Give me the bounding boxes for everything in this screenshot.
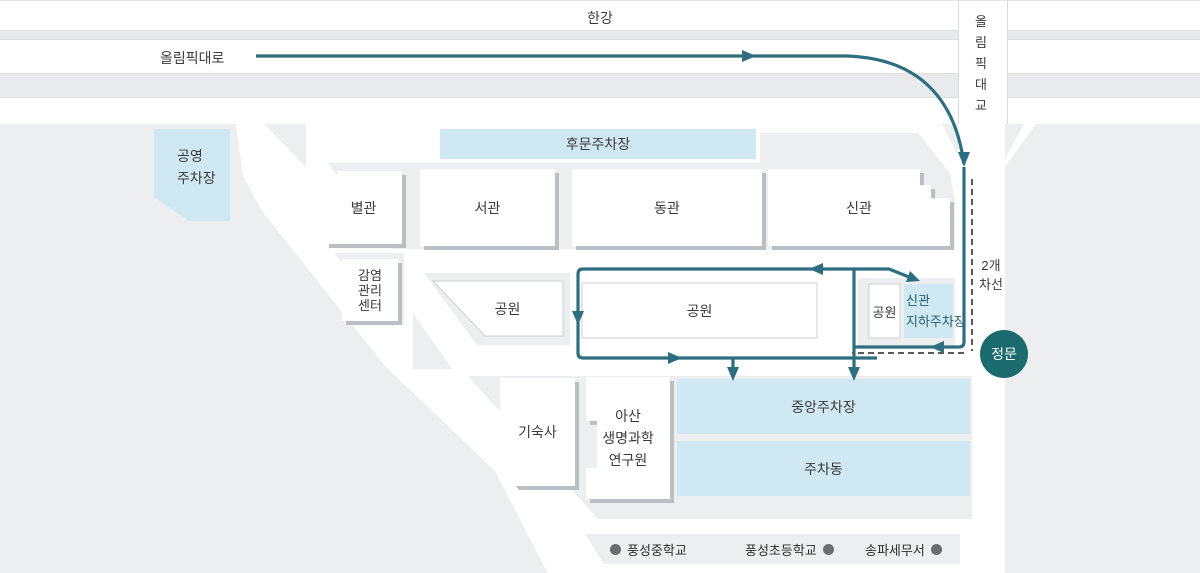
- campus-wedge-top: [264, 124, 306, 167]
- campus-directions-map: 올 림 픽 대 교 한강 올림픽대로 공영 주차장: [0, 0, 1200, 573]
- label-line: 연구원: [602, 449, 654, 471]
- bridge-char: 대: [966, 74, 996, 95]
- research-institute-label: 아산 생명과학 연구원: [586, 377, 670, 499]
- route-arrow-west-gate: [930, 341, 944, 353]
- legend-item-tax-office: 송파세무서: [865, 534, 942, 564]
- legend-item-middle-school: 풍성중학교: [610, 534, 687, 564]
- central-parking-area: 중앙주차장: [677, 379, 970, 434]
- west-wing-building: 서관: [420, 169, 555, 246]
- legend-label: 풍성초등학교: [745, 540, 817, 559]
- road-band-upper: [0, 30, 1200, 40]
- parking-building-area: 주차동: [677, 441, 970, 496]
- han-river-label: 한강: [540, 8, 660, 28]
- label-line: 아산: [602, 405, 654, 427]
- legend-block: 풍성중학교 풍성초등학교 송파세무서: [585, 534, 960, 564]
- bridge-char: 림: [966, 32, 996, 53]
- back-gate-parking-area: 후문주차장: [440, 129, 756, 159]
- campus-sliver-curve: [942, 124, 958, 156]
- route-arrow-underground: [906, 271, 920, 282]
- location-dot-icon: [610, 544, 621, 555]
- dormitory-label: 기숙사: [500, 378, 575, 486]
- route-arrow-east: [742, 50, 756, 62]
- campus-block-east: [1005, 124, 1200, 573]
- east-wing-building: 동관: [572, 169, 762, 246]
- bridge-char: 올: [966, 11, 996, 32]
- route-arrow-east-loop: [668, 352, 682, 364]
- label-line: 신관: [906, 290, 976, 311]
- legend-item-elementary-school: 풍성초등학교: [745, 534, 834, 564]
- location-dot-icon: [931, 544, 942, 555]
- public-parking-label-line1: 공영: [177, 145, 230, 167]
- research-institute-building: 아산 생명과학 연구원: [586, 377, 670, 499]
- main-gate-badge: 정문: [980, 330, 1028, 378]
- west-wing-label: 서관: [420, 169, 555, 246]
- label-line: 지하주차장: [906, 311, 976, 332]
- route-arrow-down-ramp: [958, 152, 970, 167]
- route-arrow-west-loop: [809, 263, 823, 275]
- legend-label: 풍성중학교: [627, 540, 687, 559]
- infection-control-center-building: 감염 관리 센터: [342, 259, 398, 321]
- infection-control-center-label: 감염 관리 센터: [342, 259, 398, 321]
- label-line: 감염: [358, 268, 382, 283]
- route-underground-branch: [854, 269, 914, 279]
- two-lanes-label-line1: 2개: [974, 255, 1008, 274]
- olympic-bridge-label: 올 림 픽 대 교: [966, 11, 996, 116]
- label-line: 생명과학: [602, 427, 654, 449]
- park-west-label: 공원: [455, 281, 560, 336]
- two-lanes-label-line2: 차선: [974, 274, 1008, 293]
- location-dot-icon: [823, 544, 834, 555]
- new-wing-underground-parking-label: 신관 지하주차장: [906, 290, 976, 332]
- expressway-label: 올림픽대로: [160, 48, 224, 68]
- new-wing-label: 신관: [768, 169, 950, 246]
- label-line: 관리: [358, 283, 382, 298]
- annex-building: 별관: [325, 171, 402, 244]
- public-parking-label-line2: 주차장: [177, 167, 230, 189]
- park-center-label: 공원: [582, 283, 817, 338]
- public-parking-area: 공영 주차장: [154, 129, 230, 221]
- road-band-lower: [0, 73, 1200, 98]
- campus-wedge-mid: [413, 313, 452, 369]
- bridge-char: 픽: [966, 53, 996, 74]
- dormitory-building: 기숙사: [500, 378, 575, 486]
- legend-label: 송파세무서: [865, 540, 925, 559]
- new-wing-building: 신관: [768, 169, 950, 246]
- annex-label: 별관: [325, 171, 402, 244]
- campus-sliver-east: [1005, 124, 1024, 159]
- label-line: 센터: [358, 298, 382, 313]
- east-wing-label: 동관: [572, 169, 762, 246]
- bridge-char: 교: [966, 95, 996, 116]
- park-east-label: 공원: [869, 284, 900, 338]
